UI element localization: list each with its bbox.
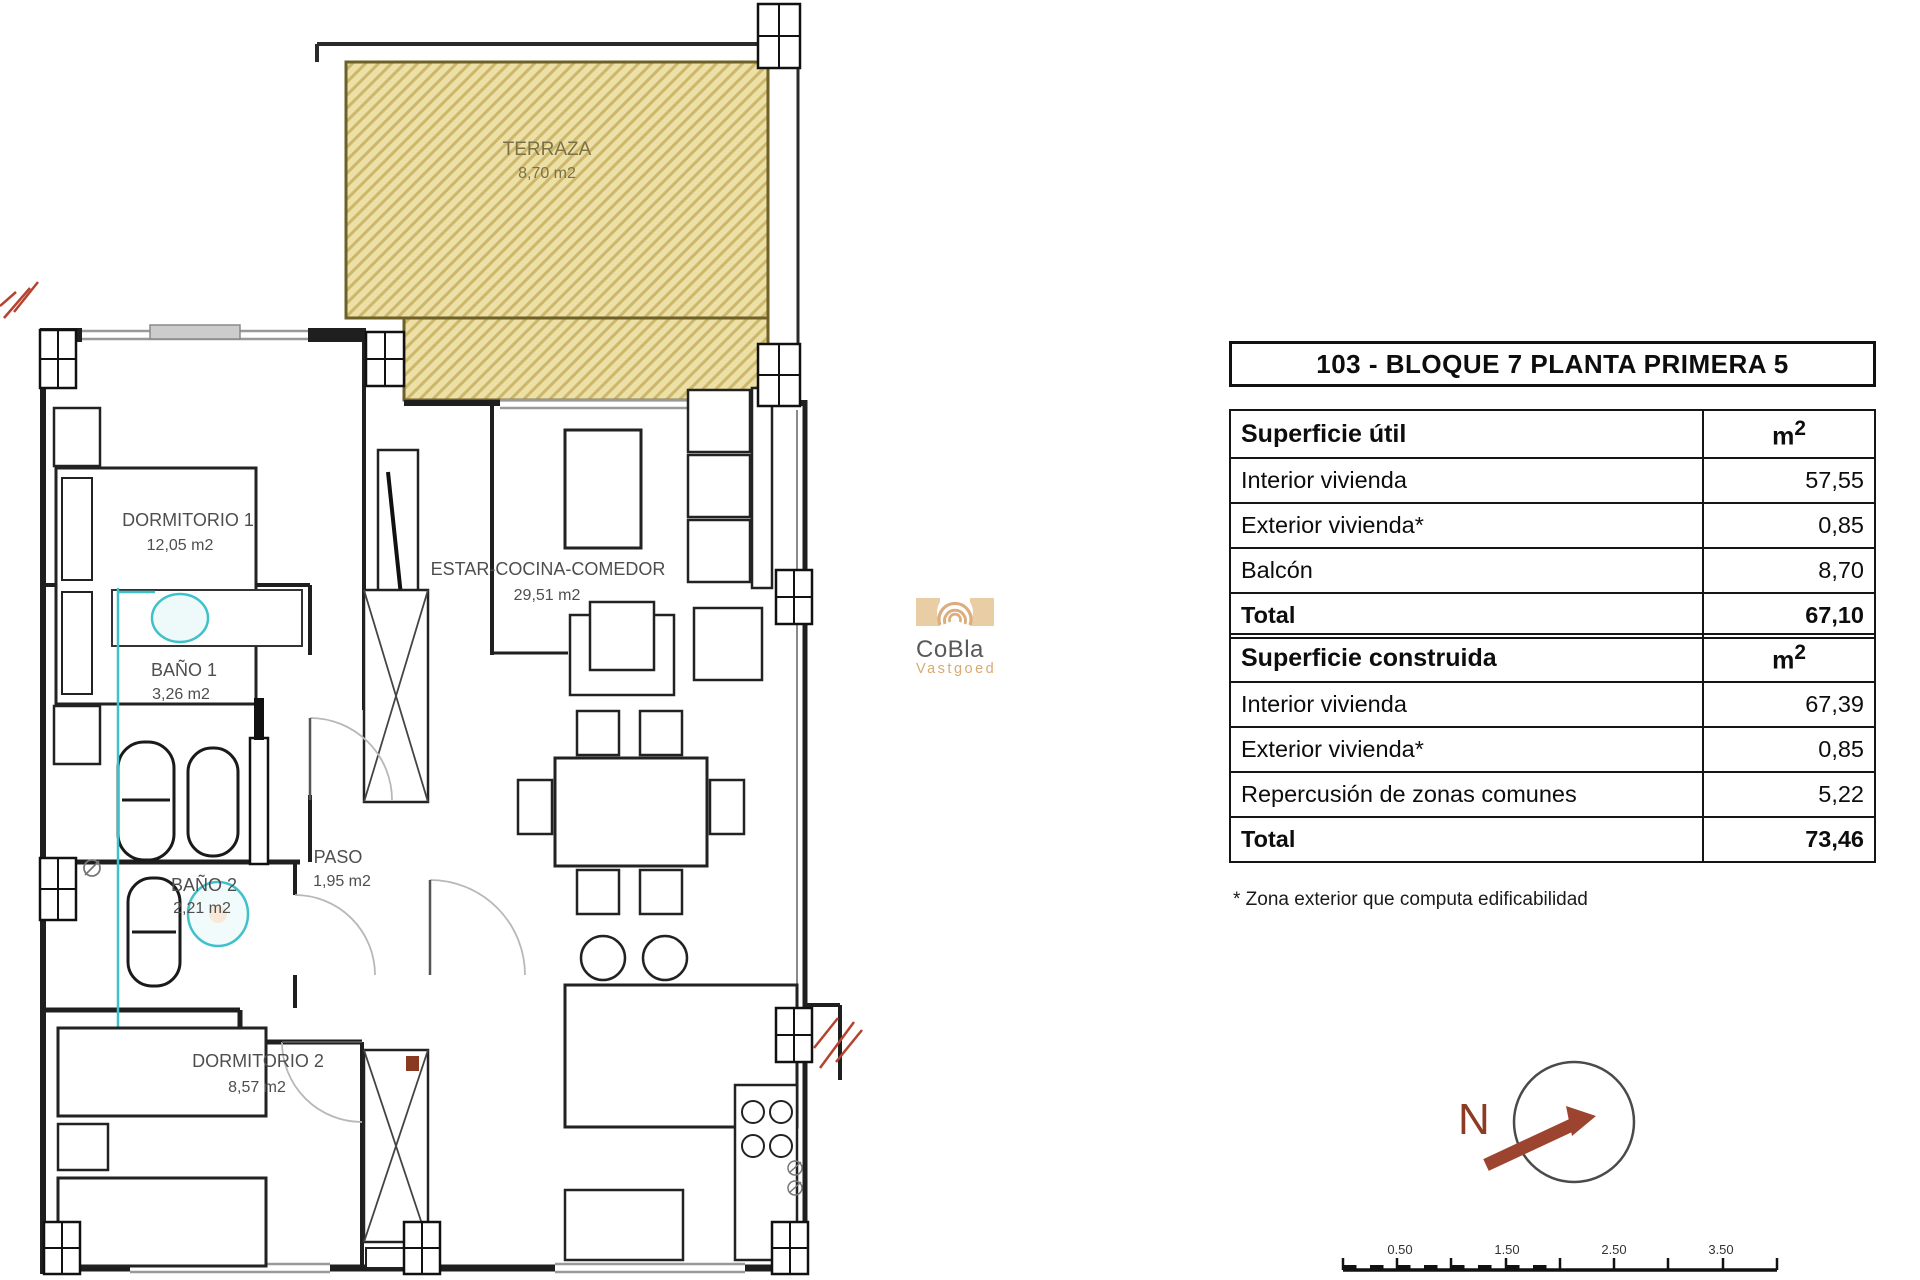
room-area-dormitorio1: 12,05 m2 (147, 537, 214, 554)
room-area-estar: 29,51 m2 (514, 587, 581, 604)
scale-label-2: 2.50 (1601, 1242, 1626, 1257)
row-label: Repercusión de zonas comunes (1230, 772, 1703, 817)
row-label: Exterior vivienda* (1230, 727, 1703, 772)
floor-plan: TERRAZA 8,70 m2 DORMITORIO 1 12,05 m2 BA… (0, 0, 880, 1280)
room-area-paso: 1,95 m2 (313, 873, 371, 890)
logo-subtitle: Vastgoed (916, 662, 1026, 678)
room-area-bano1: 3,26 m2 (152, 686, 210, 703)
cobla-logo-icon (916, 595, 994, 631)
room-area-terraza: 8,70 m2 (518, 165, 576, 182)
table-header-label: Superficie construida (1230, 634, 1703, 682)
table-header-row: Superficie construida m2 (1230, 634, 1875, 682)
logo-name: CoBla (916, 638, 1026, 662)
row-value: 5,22 (1703, 772, 1875, 817)
cobla-logo: CoBla Vastgoed (916, 595, 1026, 678)
row-value: 57,55 (1703, 458, 1875, 503)
scale-bar: 0.50 1.50 2.50 3.50 (1335, 1238, 1785, 1280)
row-value: 0,85 (1703, 503, 1875, 548)
bed-double (54, 408, 256, 764)
row-value: 73,46 (1703, 817, 1875, 862)
dining-set (518, 711, 744, 980)
scale-label-0: 0.50 (1387, 1242, 1412, 1257)
row-label: Total (1230, 817, 1703, 862)
bathroom1-fixtures (112, 590, 302, 864)
room-label-estar: ESTAR-COCINA-COMEDOR (431, 559, 666, 579)
kitchen-counter (565, 985, 802, 1260)
table-superficie-construida: Superficie construida m2 Interior vivien… (1229, 633, 1876, 863)
room-area-dormitorio2: 8,57 m2 (228, 1079, 286, 1096)
row-label: Total (1230, 593, 1703, 638)
table-row: Exterior vivienda* 0,85 (1230, 503, 1875, 548)
table-header-unit: m2 (1703, 634, 1875, 682)
table-header-row: Superficie útil m2 (1230, 410, 1875, 458)
table-row: Interior vivienda 67,39 (1230, 682, 1875, 727)
room-label-dormitorio1: DORMITORIO 1 (122, 510, 254, 530)
row-label: Exterior vivienda* (1230, 503, 1703, 548)
compass-north-label: N (1458, 1095, 1490, 1144)
table-row: Repercusión de zonas comunes 5,22 (1230, 772, 1875, 817)
row-value: 8,70 (1703, 548, 1875, 593)
plan-title: 103 - BLOQUE 7 PLANTA PRIMERA 5 (1229, 341, 1876, 387)
terraza-area (346, 62, 768, 400)
room-label-dormitorio2: DORMITORIO 2 (192, 1051, 324, 1071)
room-area-bano2: 2,21 m2 (173, 900, 231, 917)
room-label-bano1: BAÑO 1 (151, 659, 217, 680)
table-superficie-util: Superficie útil m2 Interior vivienda 57,… (1229, 409, 1876, 639)
scale-label-1: 1.50 (1494, 1242, 1519, 1257)
room-label-paso: PASO (314, 847, 363, 867)
footnote: * Zona exterior que computa edificabilid… (1233, 889, 1588, 911)
table-row: Exterior vivienda* 0,85 (1230, 727, 1875, 772)
north-compass: N (1430, 1030, 1660, 1230)
row-value: 67,39 (1703, 682, 1875, 727)
window-band-top (40, 325, 366, 342)
room-label-bano2: BAÑO 2 (171, 874, 237, 895)
table-header-label: Superficie útil (1230, 410, 1703, 458)
living-furniture (565, 388, 772, 695)
row-label: Interior vivienda (1230, 458, 1703, 503)
table-total-row: Total 67,10 (1230, 593, 1875, 638)
row-value: 0,85 (1703, 727, 1875, 772)
table-total-row: Total 73,46 (1230, 817, 1875, 862)
table-row: Interior vivienda 57,55 (1230, 458, 1875, 503)
row-label: Balcón (1230, 548, 1703, 593)
room-label-terraza: TERRAZA (503, 139, 592, 160)
scale-label-3: 3.50 (1708, 1242, 1733, 1257)
row-label: Interior vivienda (1230, 682, 1703, 727)
wardrobe-column (364, 450, 428, 1268)
row-value: 67,10 (1703, 593, 1875, 638)
table-row: Balcón 8,70 (1230, 548, 1875, 593)
table-header-unit: m2 (1703, 410, 1875, 458)
